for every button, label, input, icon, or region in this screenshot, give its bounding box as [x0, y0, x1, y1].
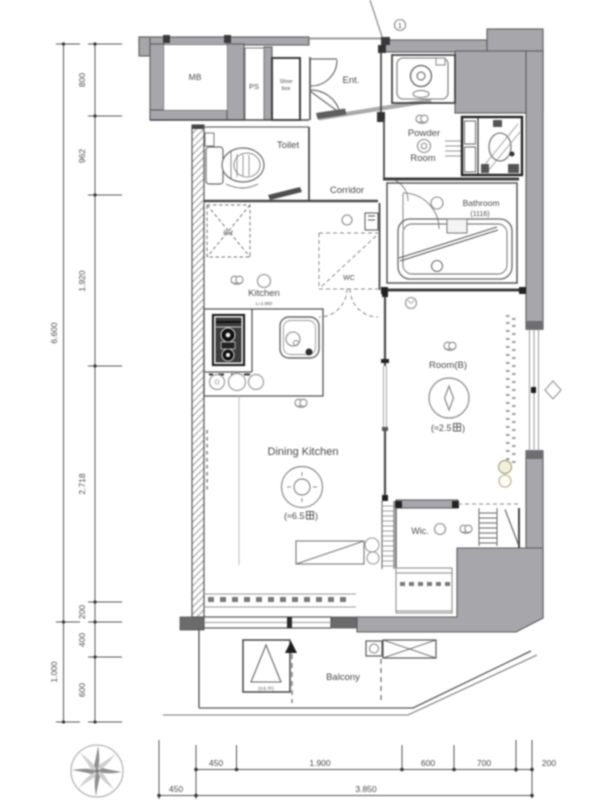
svg-text:200: 200 — [542, 758, 556, 768]
svg-text:Balcony: Balcony — [326, 672, 360, 683]
svg-text:(1116): (1116) — [470, 211, 489, 218]
svg-text:600: 600 — [77, 683, 87, 697]
svg-text:450: 450 — [169, 784, 183, 794]
svg-text:WC: WC — [343, 275, 355, 282]
svg-text:Room: Room — [410, 153, 435, 164]
svg-text:962: 962 — [77, 149, 87, 163]
svg-text:1: 1 — [398, 23, 402, 30]
svg-text:Ent.: Ent. — [343, 75, 360, 86]
svg-text:200: 200 — [77, 605, 87, 619]
svg-text:(3.5.7F): (3.5.7F) — [258, 686, 274, 691]
svg-text:Bathroom: Bathroom — [463, 198, 500, 208]
svg-text:400: 400 — [77, 633, 87, 647]
svg-text:box: box — [282, 86, 291, 92]
svg-text:6.600: 6.600 — [49, 322, 59, 344]
svg-text:Wic.: Wic. — [411, 526, 429, 536]
svg-text:600: 600 — [421, 758, 435, 768]
svg-text:MB: MB — [189, 72, 202, 82]
svg-text:): ) — [462, 423, 465, 433]
svg-text:3.850: 3.850 — [355, 784, 377, 794]
svg-text:2.718: 2.718 — [77, 473, 87, 495]
svg-text:Corridor: Corridor — [330, 185, 364, 196]
svg-text:): ) — [315, 511, 318, 521]
svg-text:PS: PS — [249, 82, 259, 91]
svg-text:Powder: Powder — [408, 128, 440, 139]
svg-text:Ref: Ref — [223, 231, 233, 237]
svg-text:Shoe: Shoe — [280, 79, 293, 85]
svg-text:1.900: 1.900 — [309, 758, 331, 768]
svg-text:1.000: 1.000 — [49, 661, 59, 683]
svg-text:800: 800 — [77, 73, 87, 87]
svg-text:(≈6.5: (≈6.5 — [284, 511, 304, 521]
svg-text:Dining Kitchen: Dining Kitchen — [268, 446, 339, 458]
svg-text:1.920: 1.920 — [77, 270, 87, 292]
svg-text:Room(B): Room(B) — [429, 360, 467, 371]
svg-text:(≈2.5: (≈2.5 — [431, 423, 451, 433]
svg-text:Toilet: Toilet — [277, 140, 300, 151]
svg-text:Kitchen: Kitchen — [248, 288, 280, 299]
svg-text:450: 450 — [209, 758, 223, 768]
svg-text:L=1.950: L=1.950 — [256, 301, 273, 306]
svg-text:700: 700 — [477, 758, 491, 768]
